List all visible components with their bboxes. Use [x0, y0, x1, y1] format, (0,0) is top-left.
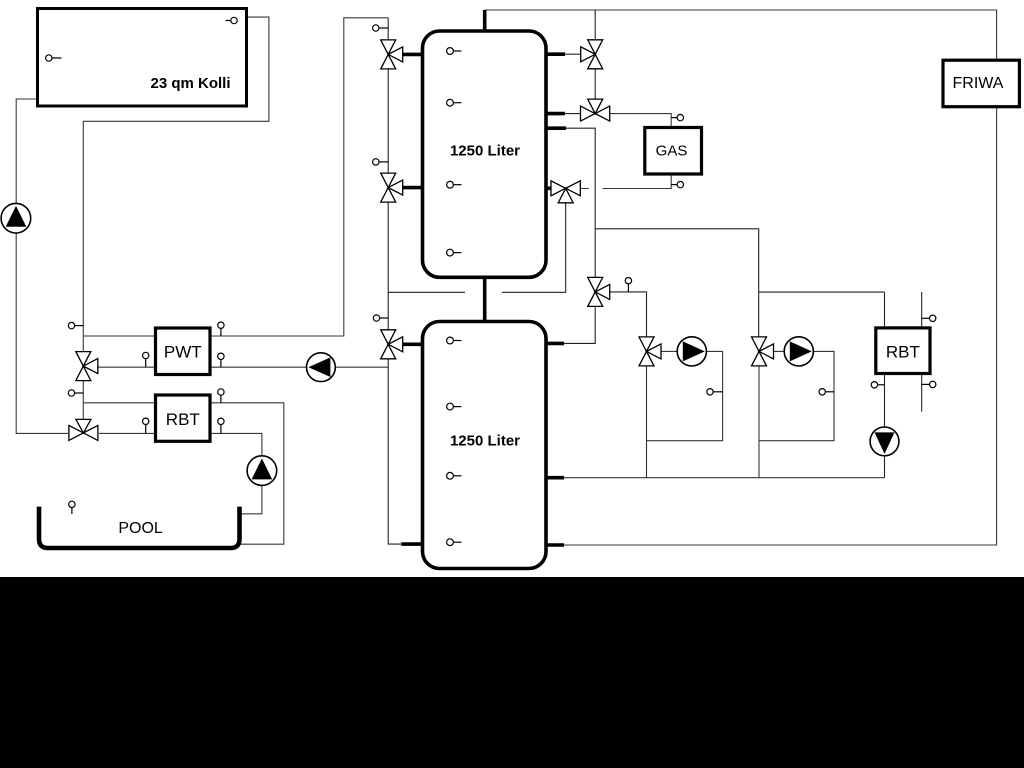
svg-text:PWT: PWT: [164, 342, 202, 361]
svg-text:POOL: POOL: [118, 520, 163, 537]
svg-text:1250 Liter: 1250 Liter: [450, 432, 520, 449]
svg-text:RBT: RBT: [886, 343, 920, 362]
svg-text:23 qm Kolli: 23 qm Kolli: [150, 75, 230, 92]
svg-text:FRIWA: FRIWA: [953, 75, 1004, 92]
svg-text:GAS: GAS: [656, 143, 688, 160]
svg-text:1250 Liter: 1250 Liter: [450, 142, 520, 159]
svg-text:RBT: RBT: [166, 410, 200, 429]
